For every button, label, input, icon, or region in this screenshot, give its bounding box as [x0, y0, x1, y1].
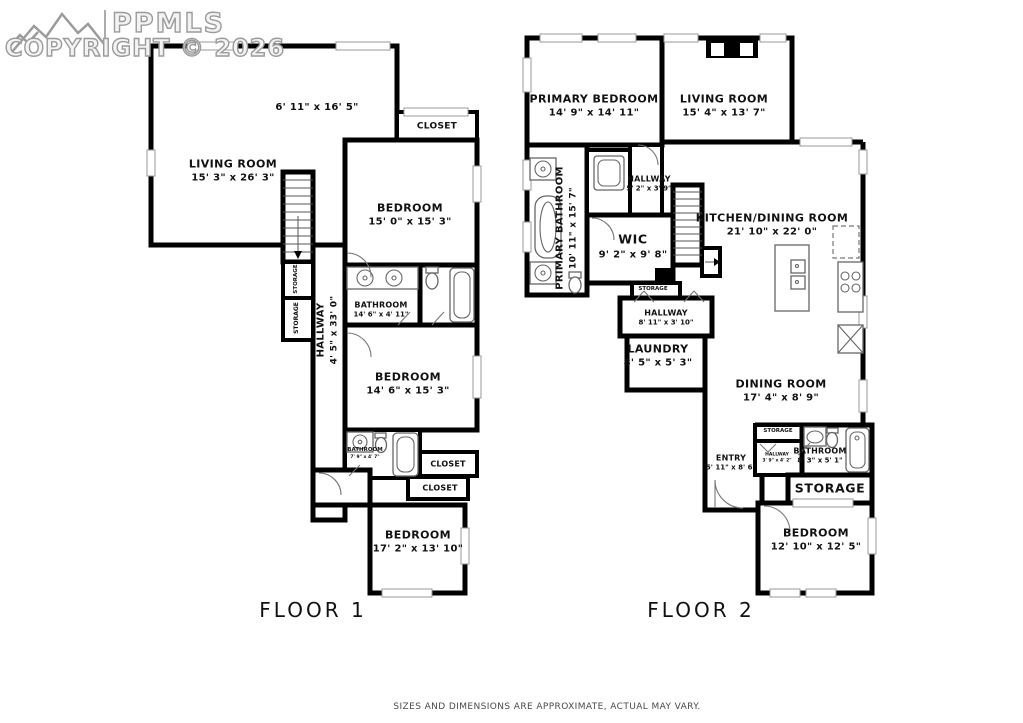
room-label-primary-bedroom: PRIMARY BEDROOM 14' 9" x 14' 11"	[530, 91, 659, 120]
room-label-wic: WIC 9' 2" x 9' 8"	[599, 230, 668, 262]
room-label-primary-bathroom: PRIMARY BATHROOM 10' 11" x 15' 7"	[554, 166, 581, 290]
room-label-kitchen-dining: KITCHEN/DINING ROOM 21' 10" x 22' 0"	[696, 210, 848, 239]
floor-plan-page: PPMLS COPYRIGHT © 2026 6' 11" x 16' 5" L…	[0, 0, 1023, 723]
room-label-hallway3-f2: HALLWAY 8' 11" x 3' 10"	[638, 308, 693, 329]
room-label-bedroom1-f1: BEDROOM 15' 0" x 15' 3"	[368, 200, 451, 229]
room-label-bedroom-f2: BEDROOM 12' 10" x 12' 5"	[771, 525, 861, 554]
room-label-storage2-f1: STORAGE	[293, 302, 301, 334]
room-label-hallway2-f2: HALLWAY 5' 2" x 3' 9"	[626, 174, 671, 195]
floor1-title: FLOOR 1	[259, 598, 366, 622]
room-label-bathroom1-f1: BATHROOM 14' 6" x 4' 11"	[353, 300, 408, 321]
room-label-bathroom3-f2: BATHROOM 8' 3" x 5' 1"	[793, 446, 846, 467]
stove-icon	[838, 262, 863, 312]
floor2-title: FLOOR 2	[647, 598, 754, 622]
floor2-walls	[527, 38, 872, 593]
room-label-closet2-f1: CLOSET	[430, 458, 465, 469]
room-label-closet3-f1: CLOSET	[422, 482, 457, 493]
room-label-closet-top: CLOSET	[417, 121, 457, 134]
room-label-living-room-f1: LIVING ROOM 15' 3" x 26' 3"	[189, 156, 277, 185]
disclaimer-text: SIZES AND DIMENSIONS ARE APPROXIMATE, AC…	[393, 702, 700, 712]
room-label-hallway-f1: HALLWAY 4' 5" x 33' 0"	[315, 296, 342, 365]
fireplace	[706, 36, 758, 58]
floor-plan-drawing	[0, 0, 1023, 723]
room-label-bedroom3-f1: BEDROOM 17' 2" x 13' 10"	[373, 527, 463, 556]
room-label-nook-dims: 6' 11" x 16' 5"	[275, 101, 358, 115]
toilet-icon	[426, 267, 438, 273]
room-label-storage5-f2: STORAGE	[795, 479, 865, 497]
copyright-text: COPYRIGHT © 2026	[5, 34, 285, 62]
room-label-storage1-f1: STORAGE	[293, 264, 301, 293]
room-label-laundry: LAUNDRY 8' 5" x 5' 3"	[624, 341, 693, 370]
room-label-hallway4-f2: HALLWAY 3' 9" x 4' 2"	[762, 453, 791, 466]
room-label-bedroom2-f1: BEDROOM 14' 6" x 15' 3"	[366, 369, 449, 398]
room-label-living-room-f2: LIVING ROOM 15' 4" x 13' 7"	[680, 91, 768, 120]
room-label-dining-room: DINING ROOM 17' 4" x 8' 9"	[735, 376, 826, 405]
room-label-entry: ENTRY 5' 11" x 8' 6"	[706, 453, 756, 474]
room-label-storage3-f2: STORAGE	[638, 286, 667, 294]
room-label-bathroom2-f1: BATHROOM 7' 9" x 4' 7"	[347, 447, 382, 461]
room-label-storage4-f2: STORAGE	[763, 428, 792, 436]
